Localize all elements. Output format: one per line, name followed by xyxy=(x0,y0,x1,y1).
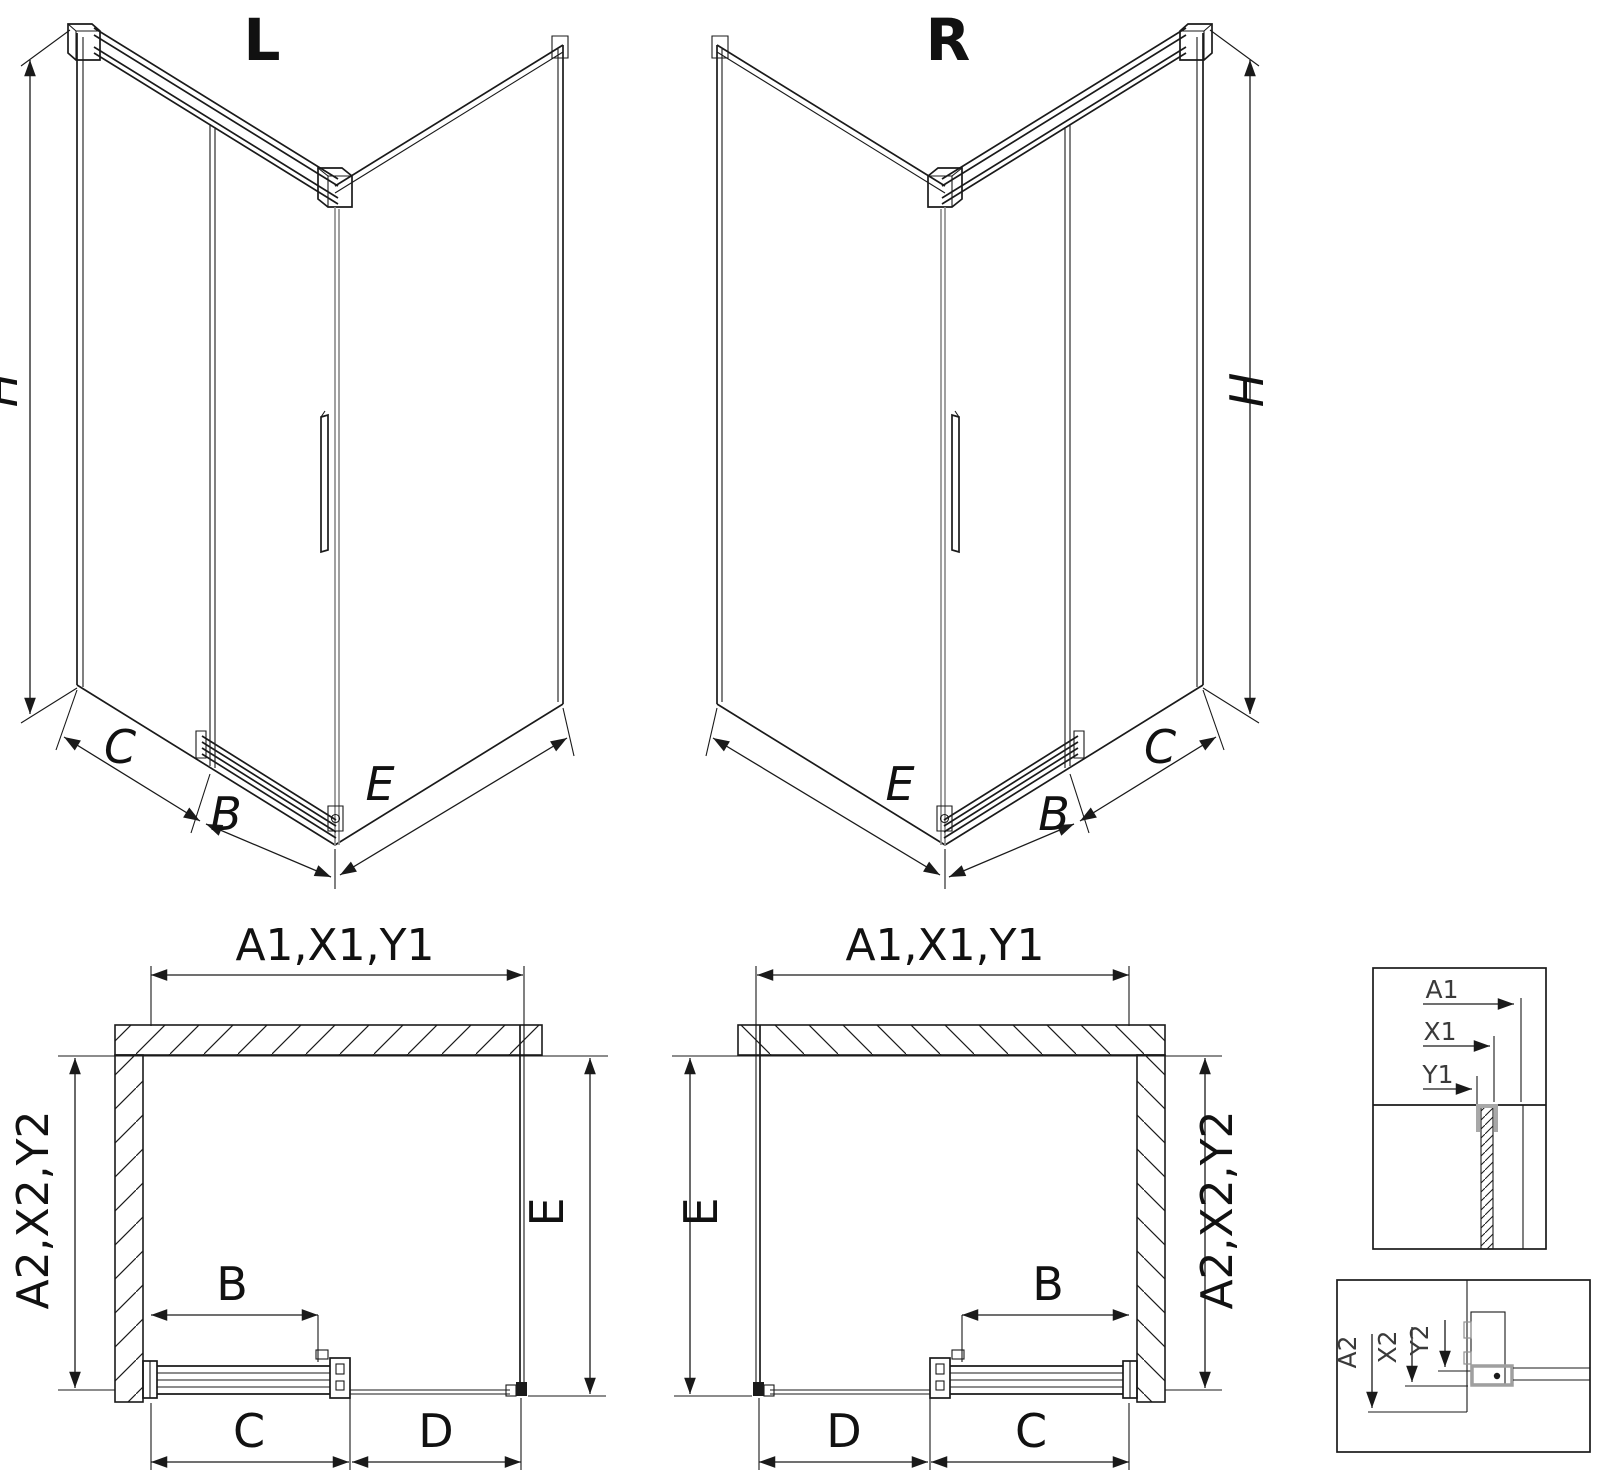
detail-label-Y2: Y2 xyxy=(1405,1324,1434,1356)
plan-left-D: D xyxy=(418,1404,453,1458)
detail-label-Y1: Y1 xyxy=(1421,1060,1453,1089)
plan-left-E: E xyxy=(520,1197,574,1226)
detail-frame xyxy=(1337,1280,1590,1452)
plan-right-E: E xyxy=(674,1197,728,1226)
shower-enclosure-technical-drawing: L R H C B E H E B C A1,X1,Y1 A2,X2,Y2 E … xyxy=(0,0,1600,1474)
variant-label-right: R xyxy=(926,6,971,74)
plan-left-front-dims: A1,X1,Y1 xyxy=(235,920,434,971)
plan-right-B: B xyxy=(1032,1257,1064,1311)
wall-profile-section xyxy=(1481,1105,1493,1249)
rail-section-lines xyxy=(1513,1368,1590,1380)
detail-frame xyxy=(1373,968,1546,1249)
dim-label-C-left: C xyxy=(104,720,136,774)
plan-right-side-dims: A2,X2,Y2 xyxy=(1192,1110,1243,1309)
door-profile-section xyxy=(1471,1312,1505,1384)
detail-label-A1: A1 xyxy=(1425,975,1458,1004)
plan-right-view xyxy=(672,966,1222,1470)
plan-left-side-dims: A2,X2,Y2 xyxy=(8,1110,59,1309)
detail-bottom-view xyxy=(1337,1280,1590,1452)
roller-carriage xyxy=(1472,1366,1512,1385)
detail-label-A2: A2 xyxy=(1333,1335,1362,1368)
plan-right-D: D xyxy=(826,1404,861,1458)
drawing-svg: L R H C B E H E B C A1,X1,Y1 A2,X2,Y2 E … xyxy=(0,0,1600,1474)
dim-label-B-left: B xyxy=(210,787,242,841)
dim-label-C-right: C xyxy=(1144,720,1176,774)
dim-label-E-left: E xyxy=(365,757,394,811)
dim-label-E-right: E xyxy=(885,757,914,811)
detail-top-view xyxy=(1373,968,1546,1249)
plan-left-B: B xyxy=(216,1257,248,1311)
dim-label-B-right: B xyxy=(1038,787,1070,841)
detail-label-X2: X2 xyxy=(1373,1330,1402,1363)
detail-label-X1: X1 xyxy=(1423,1017,1456,1046)
roller-pin xyxy=(1494,1373,1500,1379)
plan-right-front-dims: A1,X1,Y1 xyxy=(845,920,1044,971)
plan-right-C: C xyxy=(1015,1404,1047,1458)
dim-label-height-right: H xyxy=(1220,373,1274,408)
dim-label-height-left: H xyxy=(0,373,28,408)
plan-left-C: C xyxy=(233,1404,265,1458)
variant-label-left: L xyxy=(244,6,281,74)
